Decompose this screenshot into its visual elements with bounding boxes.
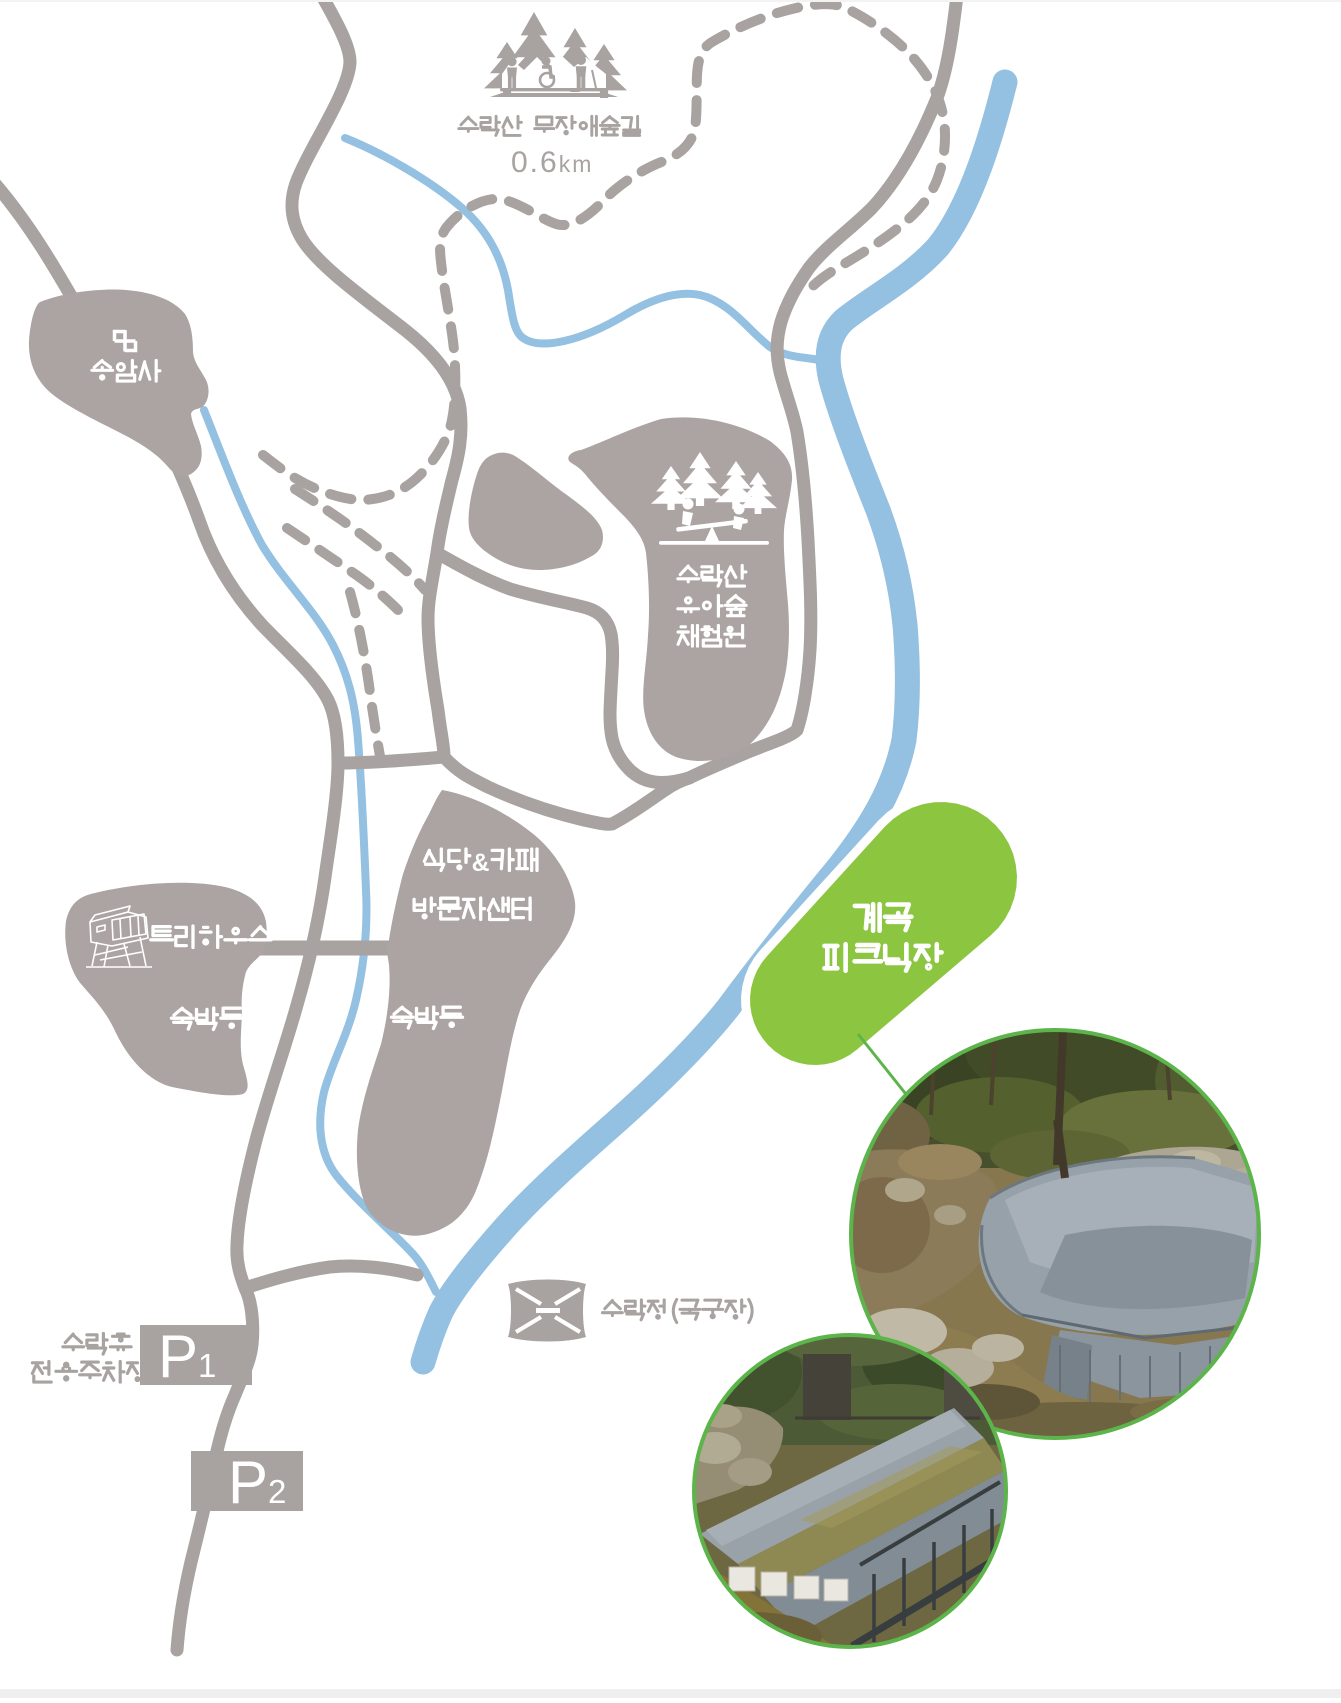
svg-text:0.6km: 0.6km [511, 146, 593, 179]
svg-text:&: & [472, 850, 490, 877]
